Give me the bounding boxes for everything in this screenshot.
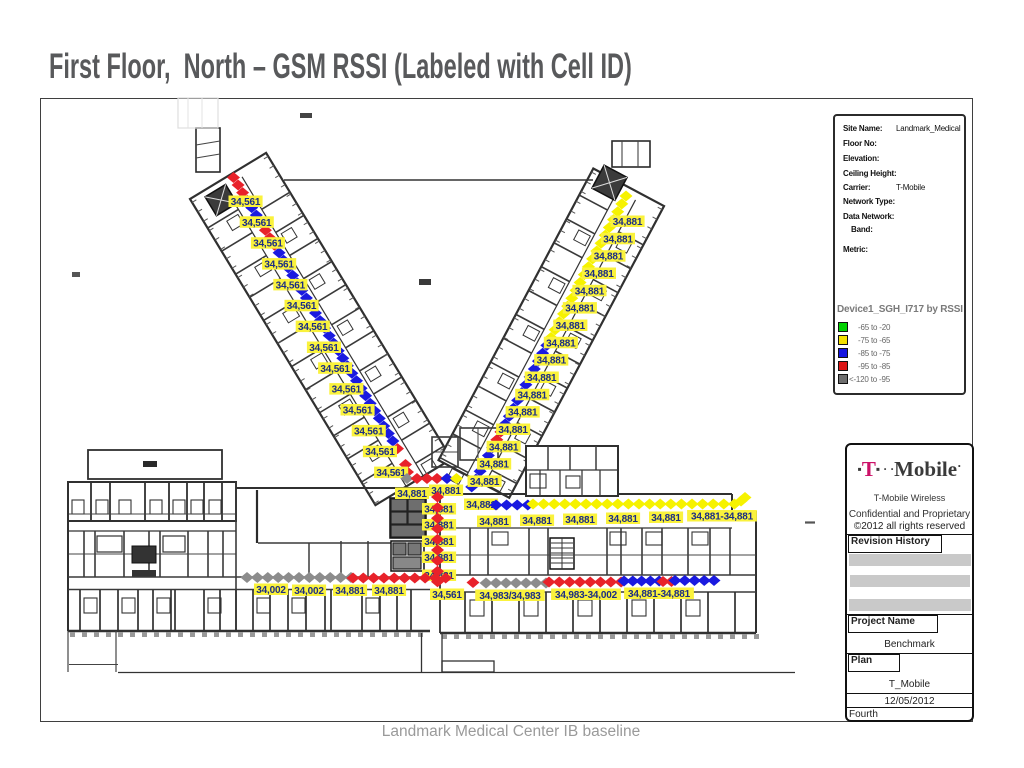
svg-text:34,561: 34,561 [276,280,306,291]
svg-text:34,561: 34,561 [332,385,362,396]
svg-text:34,881: 34,881 [489,442,519,453]
svg-text:34,881: 34,881 [651,513,681,524]
svg-text:34,881: 34,881 [522,516,552,527]
svg-text:34,983/34,983: 34,983/34,983 [479,591,541,602]
svg-text:34,881: 34,881 [537,356,567,367]
svg-text:34,881: 34,881 [546,338,576,349]
svg-text:34,002: 34,002 [294,586,324,597]
svg-text:34,561: 34,561 [298,322,328,333]
svg-text:34,881: 34,881 [479,460,509,471]
svg-text:34,561: 34,561 [287,301,317,312]
svg-text:34,881: 34,881 [508,408,538,419]
svg-text:34,881: 34,881 [527,373,557,384]
svg-text:34,002: 34,002 [256,585,286,596]
svg-text:34,561: 34,561 [309,343,339,354]
svg-text:34,881: 34,881 [608,514,638,525]
svg-text:34,881: 34,881 [479,517,509,528]
svg-text:34,881: 34,881 [518,390,548,401]
svg-text:34,881: 34,881 [374,586,404,597]
svg-text:34,881: 34,881 [498,425,528,436]
svg-text:34,881: 34,881 [335,586,365,597]
svg-text:34,561: 34,561 [253,239,283,250]
svg-text:34,561: 34,561 [432,590,462,601]
svg-text:34,881: 34,881 [613,217,643,228]
svg-text:34,983-34,002: 34,983-34,002 [555,590,618,601]
svg-text:34,881-34,881: 34,881-34,881 [628,589,691,600]
svg-text:34,881: 34,881 [470,477,500,488]
svg-text:34,881: 34,881 [575,286,605,297]
svg-text:34,561: 34,561 [365,447,395,458]
svg-text:34,561: 34,561 [242,218,272,229]
svg-text:34,561: 34,561 [343,406,373,417]
svg-text:34,881: 34,881 [565,304,595,315]
svg-text:34,881: 34,881 [584,269,614,280]
svg-text:34,881: 34,881 [565,515,595,526]
svg-text:34,561: 34,561 [320,364,350,375]
svg-text:34,881: 34,881 [603,234,633,245]
svg-text:34,881: 34,881 [556,321,586,332]
svg-text:34,881: 34,881 [594,252,624,263]
svg-text:34,881-34,881: 34,881-34,881 [691,512,754,523]
svg-text:34,561: 34,561 [354,426,384,437]
svg-text:34,561: 34,561 [264,260,294,271]
svg-text:34,561: 34,561 [231,197,261,208]
svg-text:34,881: 34,881 [397,489,427,500]
